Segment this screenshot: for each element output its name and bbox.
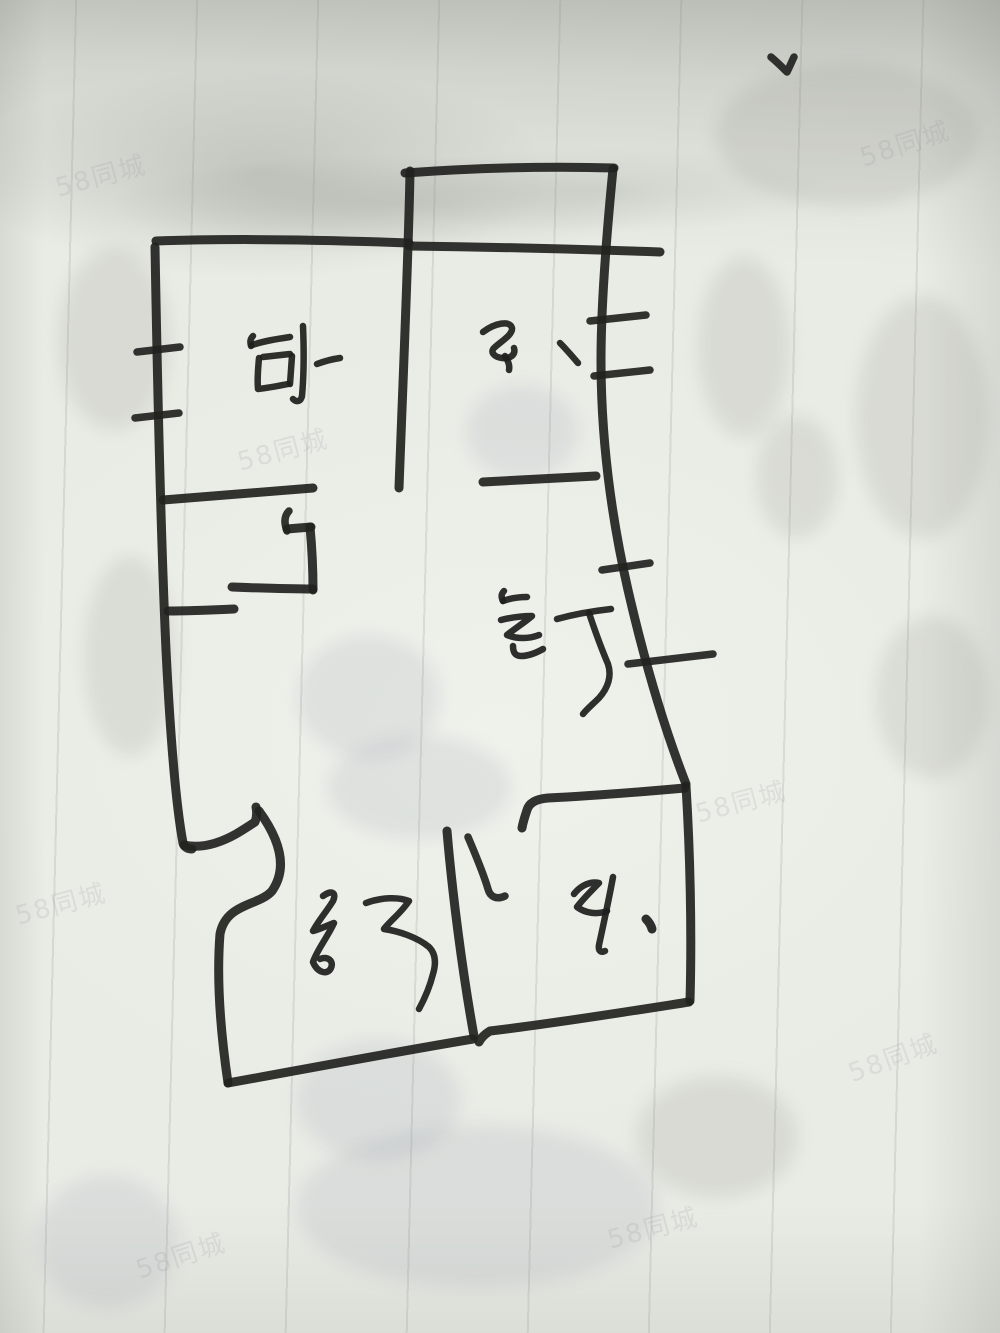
wall-right bbox=[601, 169, 686, 784]
wall-bedroom-divider bbox=[399, 171, 410, 488]
stray-pen-mark bbox=[771, 57, 794, 72]
wall-top-right bbox=[409, 246, 660, 252]
room-label-bedroom-left bbox=[250, 326, 340, 401]
window-tick-right-3 bbox=[602, 563, 650, 570]
photo-of-floorplan-sketch: 58同城58同城58同城58同城58同城58同城58同城58同城 bbox=[0, 0, 1000, 1333]
entry-door-stub bbox=[184, 807, 257, 846]
closet-right bbox=[310, 527, 313, 590]
wall-bathroom-left bbox=[447, 831, 474, 1036]
wall-top-left bbox=[156, 240, 409, 243]
room-label-living bbox=[313, 893, 435, 1009]
wall-bathroom-right bbox=[686, 786, 691, 1001]
balcony-top-wall bbox=[405, 167, 614, 173]
room-label-bathroom bbox=[574, 877, 652, 952]
wall-hall-upper bbox=[168, 609, 234, 611]
wall-bathroom-top bbox=[522, 788, 685, 828]
floor-plan-sketch bbox=[0, 0, 1000, 1333]
wall-left bbox=[155, 247, 192, 849]
room-label-bedroom-right bbox=[483, 323, 578, 370]
wall-bedroom-left-bottom bbox=[163, 488, 313, 500]
entry-door-arc-and-wall bbox=[219, 811, 281, 1083]
room-label-dining bbox=[501, 591, 611, 714]
window-tick-left-upper bbox=[137, 347, 180, 352]
closet-bottom bbox=[232, 587, 313, 589]
bathroom-door-leaf bbox=[468, 837, 505, 898]
wall-living-bottom bbox=[228, 1039, 473, 1083]
window-tick-left-lower bbox=[135, 413, 179, 418]
wall-bathroom-bottom bbox=[479, 1002, 689, 1042]
wall-bedroom-right-bottom bbox=[483, 476, 596, 482]
